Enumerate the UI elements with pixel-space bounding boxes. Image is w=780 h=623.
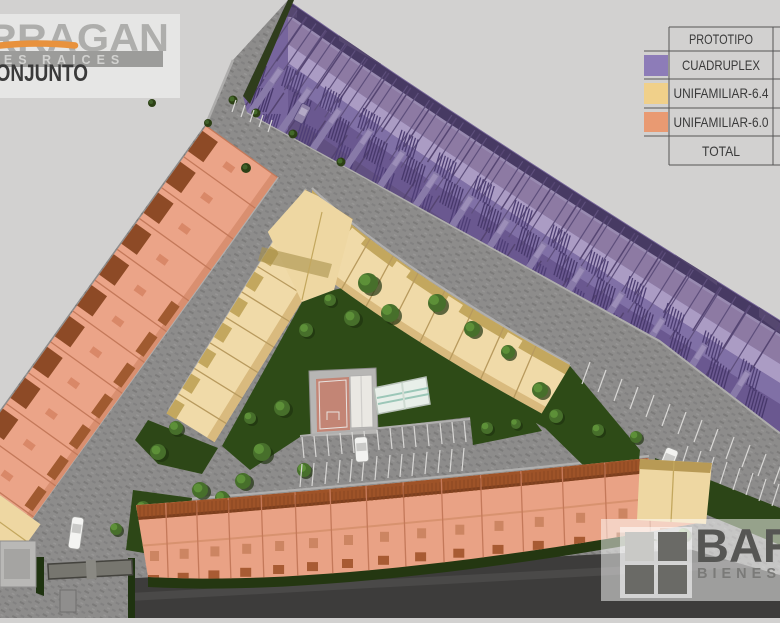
svg-text:BARR: BARR — [695, 519, 780, 572]
svg-text:UNIFAMILIAR-6.4: UNIFAMILIAR-6.4 — [674, 85, 769, 101]
svg-text:PROTOTIPO: PROTOTIPO — [689, 31, 753, 47]
svg-text:TOTAL: TOTAL — [702, 143, 740, 159]
svg-text:CUADRUPLEX: CUADRUPLEX — [682, 57, 761, 73]
svg-text:CONJUNTO: CONJUNTO — [0, 60, 88, 87]
svg-text:UNIFAMILIAR-6.0: UNIFAMILIAR-6.0 — [674, 114, 769, 130]
svg-text:BIENES: BIENES — [697, 566, 780, 582]
